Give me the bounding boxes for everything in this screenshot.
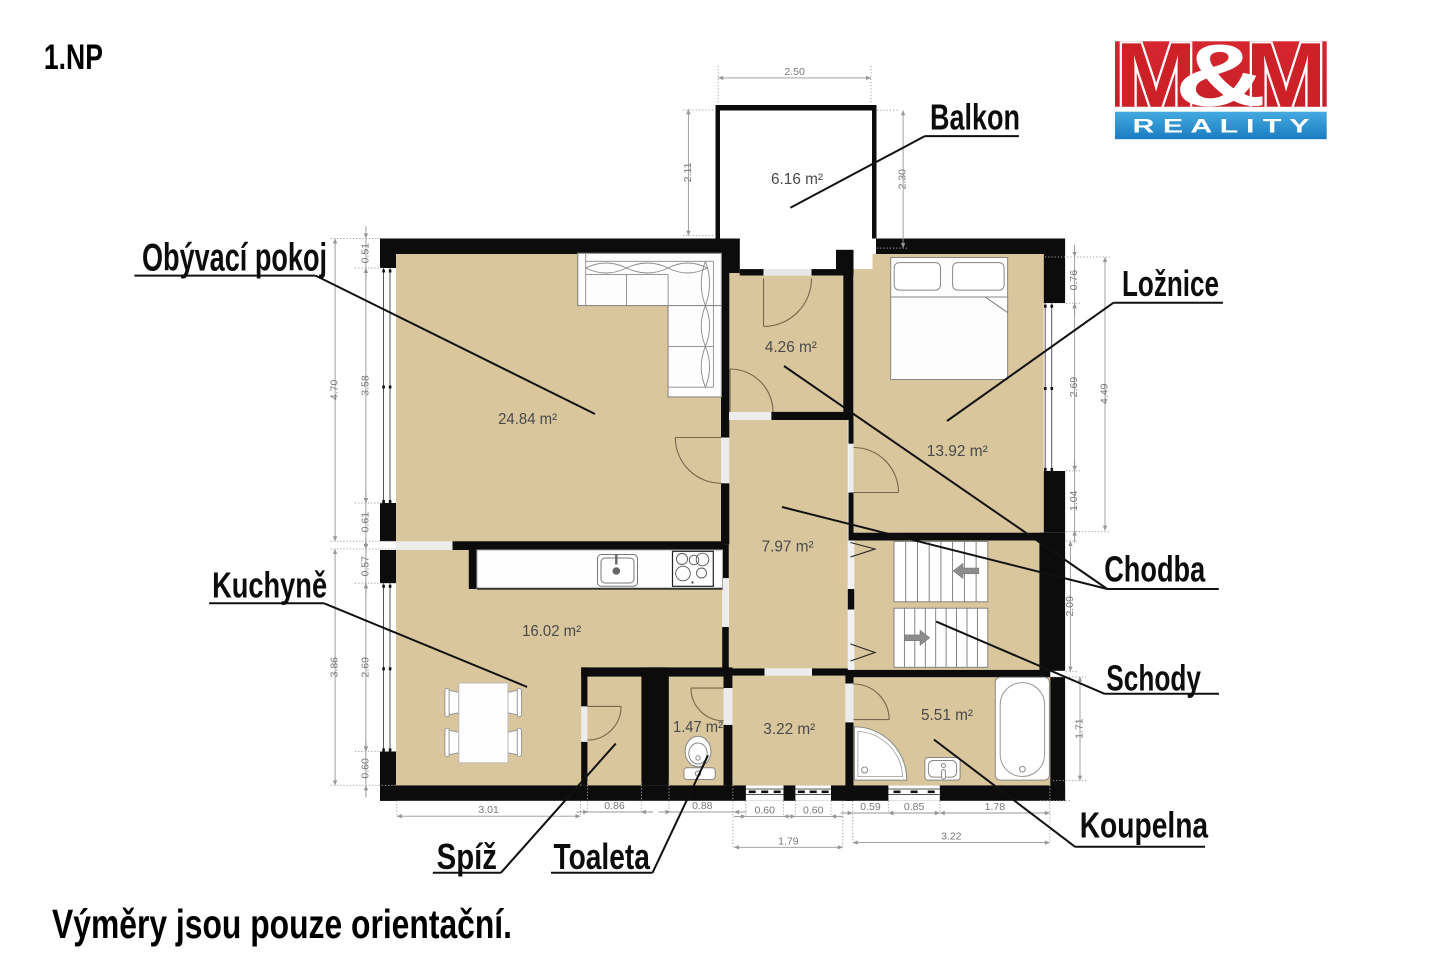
svg-text:R E A L I T Y: R E A L I T Y: [1133, 117, 1311, 138]
svg-text:1.71: 1.71: [1074, 718, 1086, 739]
svg-text:Výměry jsou pouze orientační.: Výměry jsou pouze orientační.: [52, 901, 512, 947]
svg-text:7.97 m²: 7.97 m²: [762, 539, 814, 556]
svg-text:2.30: 2.30: [897, 169, 909, 190]
svg-text:0.60: 0.60: [803, 804, 824, 816]
svg-text:1.79: 1.79: [778, 835, 799, 847]
svg-text:Ložnice: Ložnice: [1122, 263, 1219, 304]
svg-text:Balkon: Balkon: [930, 96, 1020, 137]
svg-text:Chodba: Chodba: [1104, 549, 1206, 590]
svg-text:1.NP: 1.NP: [44, 38, 103, 77]
svg-text:4.26 m²: 4.26 m²: [765, 339, 817, 356]
svg-text:6.16 m²: 6.16 m²: [771, 171, 823, 188]
svg-text:Koupelna: Koupelna: [1080, 804, 1209, 845]
svg-text:2.09: 2.09: [1064, 596, 1076, 617]
svg-text:3.22: 3.22: [941, 831, 962, 843]
svg-text:Schody: Schody: [1106, 657, 1201, 698]
svg-text:Kuchyně: Kuchyně: [212, 564, 327, 605]
svg-text:Spíž: Spíž: [437, 836, 497, 877]
svg-text:4.70: 4.70: [329, 380, 341, 401]
svg-text:1.47 m²: 1.47 m²: [673, 719, 723, 736]
svg-text:3.22 m²: 3.22 m²: [763, 721, 815, 738]
svg-text:0.57: 0.57: [359, 556, 371, 577]
svg-text:1.78: 1.78: [985, 801, 1006, 813]
svg-text:1.04: 1.04: [1068, 490, 1080, 511]
svg-text:0.51: 0.51: [359, 243, 371, 264]
svg-text:0.76: 0.76: [1068, 270, 1080, 291]
svg-text:Obývací pokoj: Obývací pokoj: [142, 236, 327, 279]
svg-text:5.51 m²: 5.51 m²: [921, 707, 973, 724]
svg-text:2.11: 2.11: [682, 162, 694, 182]
svg-text:3.86: 3.86: [329, 657, 341, 678]
svg-text:0.60: 0.60: [359, 758, 371, 779]
svg-text:2.69: 2.69: [1068, 377, 1080, 398]
svg-text:3.01: 3.01: [478, 804, 499, 816]
svg-text:3.58: 3.58: [359, 375, 371, 396]
svg-text:2.50: 2.50: [784, 66, 805, 78]
svg-text:0.60: 0.60: [754, 804, 775, 816]
svg-text:13.92 m²: 13.92 m²: [927, 443, 988, 460]
svg-text:24.84 m²: 24.84 m²: [498, 411, 557, 428]
svg-text:2.69: 2.69: [359, 657, 371, 678]
svg-text:0.61: 0.61: [359, 512, 371, 533]
svg-text:0.59: 0.59: [860, 801, 881, 813]
svg-text:Toaleta: Toaleta: [554, 836, 651, 877]
svg-text:0.86: 0.86: [604, 800, 625, 812]
svg-text:16.02 m²: 16.02 m²: [522, 623, 581, 640]
svg-text:4.49: 4.49: [1099, 383, 1111, 404]
svg-text:0.85: 0.85: [904, 801, 925, 813]
svg-text:0.88: 0.88: [692, 800, 713, 812]
